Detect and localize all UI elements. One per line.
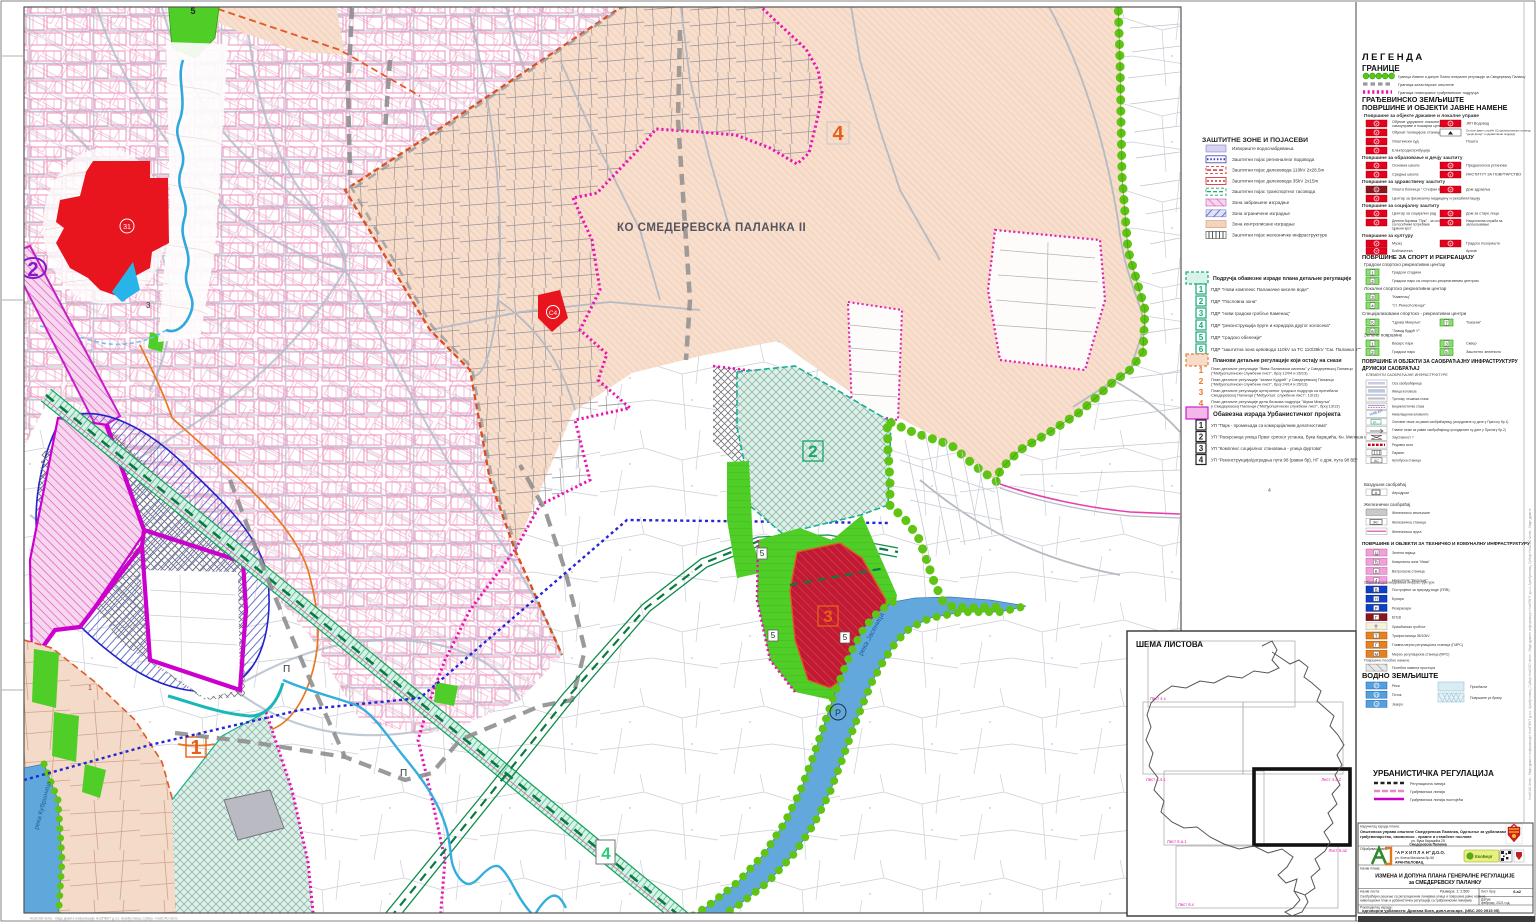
svg-text:Површине посебне намене: Површине посебне намене bbox=[1364, 659, 1410, 663]
svg-text:У: У bbox=[1375, 196, 1378, 201]
svg-text:Дом здравља: Дом здравља bbox=[1466, 188, 1491, 192]
svg-text:Површине за објекте државне и: Површине за објекте државне и локалне уп… bbox=[1364, 112, 1479, 119]
svg-text:Т: Т bbox=[1375, 633, 1378, 638]
svg-text:1: 1 bbox=[190, 737, 201, 759]
svg-text:1: 1 bbox=[88, 685, 92, 692]
svg-text:Заштитни појас далековода 35kV: Заштитни појас далековода 35kV 2x15m bbox=[1232, 178, 1319, 183]
svg-text:5: 5 bbox=[1199, 333, 1204, 342]
svg-text:Површине уз брану: Површине уз брану bbox=[1470, 696, 1502, 700]
svg-text:4: 4 bbox=[1199, 321, 1204, 330]
svg-text:УРБАНИСТИЧКА РЕГУЛАЦИЈА: УРБАНИСТИЧКА РЕГУЛАЦИЈА bbox=[1373, 769, 1494, 778]
svg-text:("Међуопштински службени лист": ("Међуопштински службени лист", број 12/… bbox=[1211, 371, 1308, 376]
svg-text:Р: Р bbox=[1375, 606, 1378, 611]
svg-text:Заштитни појас далековода 110k: Заштитни појас далековода 110kV 2x28,5m bbox=[1232, 168, 1325, 173]
svg-text:Градски стадион: Градски стадион bbox=[1392, 271, 1421, 275]
svg-text:ПОВРШИНЕ И ОБЈЕКТИ ЗА САОБРАЋА: ПОВРШИНЕ И ОБЈЕКТИ ЗА САОБРАЋАЈНУ ИНФРАС… bbox=[1362, 359, 1519, 365]
svg-text:нивелациони план и урбанистичк: нивелациони план и урбанистичка регулаци… bbox=[1360, 899, 1472, 903]
svg-text:Приобаље: Приобаље bbox=[1470, 685, 1487, 689]
svg-text:П: П bbox=[1375, 692, 1378, 697]
svg-text:Локални спортско рекреативни ц: Локални спортско рекреативни центар bbox=[1364, 286, 1447, 291]
svg-text:Језеро: Језеро bbox=[1392, 702, 1403, 706]
svg-text:ПОВРШИНЕ И ОБЈЕКТИ ЈАВНЕ НАМЕ: ПОВРШИНЕ И ОБЈЕКТИ ЈАВНЕ НАМЕНЕ bbox=[1362, 103, 1508, 112]
svg-text:Мерно регулациона станица (МРС: Мерно регулациона станица (МРС) bbox=[1392, 652, 1449, 656]
svg-text:Лист 6.а2: Лист 6.а2 bbox=[1329, 848, 1348, 853]
svg-text:ИНСТИТУТ ЗА ПОВРТАРСТВО: ИНСТИТУТ ЗА ПОВРТАРСТВО bbox=[1466, 173, 1521, 177]
svg-text:Заштитни појас транспортног га: Заштитни појас транспортног гасовода bbox=[1232, 189, 1316, 194]
svg-text:4: 4 bbox=[1268, 488, 1271, 494]
svg-text:Површине за здравствену заштит: Површине за здравствену заштиту bbox=[1362, 179, 1446, 185]
svg-text:Лист 4.4.1: Лист 4.4.1 bbox=[1146, 777, 1166, 782]
svg-text:Зона контролисане изградње: Зона контролисане изградње bbox=[1232, 222, 1295, 227]
svg-text:У: У bbox=[1375, 163, 1378, 168]
svg-text:HostCAD demo - Овде држите инф: HostCAD demo - Овде држите информације H… bbox=[1528, 508, 1532, 800]
svg-text:Подручја обавезне израде плана: Подручја обавезне израде плана детаљне р… bbox=[1213, 275, 1351, 282]
svg-text:Размера: 1: 2.500: Размера: 1: 2.500 bbox=[1440, 890, 1469, 894]
svg-text:УП "Раскрсница улица Првог срп: УП "Раскрсница улица Првог српског устан… bbox=[1211, 435, 1385, 440]
svg-text:Лист 6.х: Лист 6.х bbox=[1178, 902, 1195, 907]
svg-text:Грађевинска линија постојећа: Грађевинска линија постојећа bbox=[1410, 798, 1464, 802]
svg-text:У: У bbox=[1375, 130, 1378, 135]
svg-text:"дечји фонд" и здравствени под: "дечји фонд" и здравствени подрјед) bbox=[1466, 132, 1515, 136]
svg-text:Ваздушни саобраћај: Ваздушни саобраћај bbox=[1364, 482, 1406, 487]
svg-text:31: 31 bbox=[123, 224, 131, 231]
svg-text:ПОВРШИНЕ И ОБЈЕКТИ ЗА ТЕХНИЧКО: ПОВРШИНЕ И ОБЈЕКТИ ЗА ТЕХНИЧКО И КОМУНАЛ… bbox=[1362, 541, 1530, 546]
svg-text:У: У bbox=[1375, 249, 1378, 254]
svg-text:Железнички саобраћај: Железнички саобраћај bbox=[1364, 502, 1410, 507]
svg-text:ул. Кнеза Михаила бр.66: ул. Кнеза Михаила бр.66 bbox=[1395, 856, 1434, 860]
svg-text:ЛЕГЕНДА: ЛЕГЕНДА bbox=[1362, 52, 1425, 63]
svg-text:1: 1 bbox=[1199, 285, 1204, 294]
svg-text:Основна школа: Основна школа bbox=[1392, 164, 1420, 168]
svg-text:Хришћанско гробље: Хришћанско гробље bbox=[1392, 625, 1425, 629]
svg-text:2: 2 bbox=[808, 442, 817, 461]
svg-text:Градски парк са спортско-рекре: Градски парк са спортско-рекреативним це… bbox=[1392, 279, 1479, 283]
svg-text:У: У bbox=[1449, 187, 1452, 192]
svg-text:1: 1 bbox=[1199, 421, 1204, 430]
svg-text:"ст. Ренесполенца": "ст. Ренесполенца" bbox=[1392, 304, 1426, 308]
svg-text:Трафостаница 35/10kV: Трафостаница 35/10kV bbox=[1392, 634, 1430, 638]
svg-text:ПДР "заштитна зона цевовода 11: ПДР "заштитна зона цевовода 110kV за ТС … bbox=[1211, 347, 1361, 352]
svg-text:3: 3 bbox=[146, 301, 151, 310]
svg-text:Средња школа: Средња школа bbox=[1392, 173, 1419, 177]
svg-text:"Базени": "Базени" bbox=[1466, 321, 1482, 325]
svg-text:Градско позориште: Градско позориште bbox=[1466, 242, 1500, 246]
svg-text:одговорни урбаниста: Драгана Б: одговорни урбаниста: Драгана Бига, дипл.… bbox=[1362, 908, 1500, 913]
svg-text:4: 4 bbox=[601, 844, 611, 863]
svg-text:ИЗМЕНА И ДОПУНА ПЛАНА ГЕНЕРАЛН: ИЗМЕНА И ДОПУНА ПЛАНА ГЕНЕРАЛНЕ РЕГУЛАЦИ… bbox=[1375, 874, 1515, 880]
svg-text:Главне тачке за раван саобраћа: Главне тачке за раван саобраћајницу (коо… bbox=[1392, 428, 1506, 432]
svg-text:Оса саобраћајница: Оса саобраћајница bbox=[1392, 382, 1422, 386]
svg-text:Електродистрибуција: Електродистрибуција bbox=[1392, 149, 1431, 153]
svg-text:HostCAD demo - Овде држите инф: HostCAD demo - Овде држите информације H… bbox=[30, 917, 178, 921]
svg-text:1: 1 bbox=[1199, 365, 1204, 375]
svg-text:Објекат полицијске станице: Објекат полицијске станице bbox=[1392, 131, 1441, 135]
svg-text:Главна мерно регулациона стани: Главна мерно регулациона станица (ГМРС) bbox=[1392, 643, 1463, 647]
svg-text:У: У bbox=[1375, 220, 1378, 225]
svg-text:У: У bbox=[1375, 241, 1378, 246]
svg-text:Наручилац израде плана:: Наручилац израде плана: bbox=[1360, 825, 1400, 829]
svg-text:Зауставност ?: Зауставност ? bbox=[1392, 436, 1414, 440]
svg-text:Објекти водоснабдевања инфраст: Објекти водоснабдевања инфраструктуре bbox=[1364, 581, 1435, 585]
svg-text:Назив листа:: Назив листа: bbox=[1360, 890, 1380, 894]
svg-text:("Међуопштински службени лист": ("Међуопштински службени лист", број 24/… bbox=[1211, 382, 1308, 387]
svg-text:Железничко земљиште: Железничко земљиште bbox=[1392, 511, 1430, 515]
svg-text:у Смедеревској Паланци ("Међуо: у Смедеревској Паланци ("Међуопштински с… bbox=[1211, 404, 1340, 409]
svg-text:Паркинг: Паркинг bbox=[1392, 451, 1405, 455]
svg-text:П: П bbox=[400, 768, 407, 779]
svg-text:Ивица коловоза: Ивица коловоза bbox=[1392, 389, 1417, 393]
svg-text:3: 3 bbox=[1199, 444, 1204, 453]
svg-text:Нивелациони елементи: Нивелациони елементи bbox=[1392, 412, 1428, 416]
svg-text:ПДР "градско обележје": ПДР "градско обележје" bbox=[1211, 335, 1262, 340]
svg-text:Планови детаљне регулације кој: Планови детаљне регулације који остају н… bbox=[1213, 358, 1342, 364]
svg-text:Зона забрањене изградње: Зона забрањене изградње bbox=[1232, 200, 1290, 205]
svg-text:Обрађивач плана:: Обрађивач плана: bbox=[1360, 847, 1388, 851]
svg-text:Ђ: Ђ bbox=[1374, 560, 1378, 565]
svg-text:УП "Комплекс социјалног станов: УП "Комплекс социјалног становања - улиц… bbox=[1211, 446, 1322, 451]
svg-text:ДРУМСКИ САОБРАЋАЈ: ДРУМСКИ САОБРАЋАЈ bbox=[1362, 366, 1420, 372]
svg-text:Заштитно зеленило: Заштитно зеленило bbox=[1466, 350, 1501, 354]
svg-text:У: У bbox=[1375, 172, 1378, 177]
svg-text:У: У bbox=[1375, 121, 1378, 126]
svg-text:Лист 4.х: Лист 4.х bbox=[1150, 696, 1167, 701]
svg-text:ПОВРШИНЕ ЗА СПОРТ И РЕКРЕАЦИЈУ: ПОВРШИНЕ ЗА СПОРТ И РЕКРЕАЦИЈУ bbox=[1362, 255, 1474, 261]
svg-text:3: 3 bbox=[1199, 387, 1204, 397]
svg-text:самоуправе и пожарни центар: самоуправе и пожарни центар bbox=[1392, 124, 1446, 128]
svg-text:Река: Река bbox=[1392, 684, 1400, 688]
svg-text:Смедеревска Паланка: Смедеревска Паланка bbox=[1409, 843, 1446, 847]
svg-text:ПДР "Пословна зона": ПДР "Пословна зона" bbox=[1211, 299, 1257, 304]
svg-text:Заштитни појас регионалног вод: Заштитни појас регионалног водовода bbox=[1232, 157, 1315, 162]
svg-text:ЗАШТИТНЕ ЗОНЕ И ПОЈАСЕВИ: ЗАШТИТНЕ ЗОНЕ И ПОЈАСЕВИ bbox=[1202, 137, 1308, 144]
svg-text:Железничка станица: Железничка станица bbox=[1392, 520, 1426, 524]
svg-text:Комунална зона "Ивак": Комунална зона "Ивак" bbox=[1392, 560, 1430, 564]
svg-text:ПДР "нови градски гробље Камен: ПДР "нови градски гробље Каменац" bbox=[1211, 311, 1290, 316]
svg-text:Железничка пруга: Железничка пруга bbox=[1392, 530, 1422, 534]
svg-text:У: У bbox=[1375, 139, 1378, 144]
svg-text:КО СМЕДЕРЕВСКА ПАЛАНКА II: КО СМЕДЕРЕВСКА ПАЛАНКА II bbox=[617, 222, 806, 234]
svg-text:Лист 6.а.1: Лист 6.а.1 bbox=[1167, 839, 1187, 844]
svg-text:Површине за образовање и дечју: Површине за образовање и дечју заштиту bbox=[1362, 154, 1463, 161]
svg-text:3: 3 bbox=[1199, 309, 1204, 318]
svg-text:Зелене површине: Зелене површине bbox=[1364, 333, 1403, 338]
svg-text:У: У bbox=[1375, 148, 1378, 153]
svg-text:Лист број: Лист број bbox=[1481, 890, 1496, 894]
svg-text:АРАНЂЕЛОВАЦ: АРАНЂЕЛОВАЦ bbox=[1395, 861, 1424, 865]
svg-text:УП "Парк - промењада са комерц: УП "Парк - промењада са комерцијалним де… bbox=[1211, 423, 1328, 428]
svg-text:Заштитни појас железничке инфр: Заштитни појас железничке инфраструктуре bbox=[1232, 232, 1328, 237]
svg-text:Ј: Ј bbox=[1376, 702, 1378, 707]
svg-text:Ватрогасна станица: Ватрогасна станица bbox=[1392, 569, 1425, 573]
svg-text:Бунари: Бунари bbox=[1392, 597, 1404, 601]
svg-text:Р: Р bbox=[1375, 683, 1378, 688]
svg-text:"Црква Микуља": "Црква Микуља" bbox=[1392, 321, 1422, 325]
svg-text:Пошта: Пошта bbox=[1466, 140, 1479, 144]
svg-text:Постројење за прераду воде (ПП: Постројење за прераду воде (ППВ) bbox=[1392, 588, 1450, 592]
svg-text:Црвени крст: Црвени крст bbox=[1392, 226, 1412, 230]
svg-text:Смедеревској Паланци ("Међуопш: Смедеревској Паланци ("Међуопшт. службен… bbox=[1211, 393, 1319, 398]
svg-text:ЕкоБерг: ЕкоБерг bbox=[1475, 854, 1493, 859]
svg-text:Градски парк: Градски парк bbox=[1392, 350, 1415, 354]
svg-text:А: А bbox=[1375, 491, 1378, 495]
svg-text:Центар за социјални рад: Центар за социјални рад bbox=[1392, 212, 1437, 216]
svg-text:Музеј: Музеј bbox=[1392, 242, 1402, 246]
svg-text:Р: Р bbox=[835, 708, 841, 718]
svg-text:Предшколска установа: Предшколска установа bbox=[1466, 164, 1508, 168]
svg-text:Регулациона линија: Регулациона линија bbox=[1410, 782, 1446, 786]
svg-text:У: У bbox=[1449, 241, 1452, 246]
svg-text:Дом за старе лица: Дом за старе лица bbox=[1466, 212, 1500, 216]
svg-text:Поток: Поток bbox=[1392, 693, 1402, 697]
svg-text:Редовна зона: Редовна зона bbox=[1392, 443, 1413, 447]
svg-text:Резервоари: Резервоари bbox=[1392, 606, 1411, 610]
svg-text:Аеродром: Аеродром bbox=[1392, 491, 1409, 495]
svg-text:С4: С4 bbox=[549, 310, 558, 317]
svg-text:Тротоар, пешачка стаза: Тротоар, пешачка стаза bbox=[1392, 397, 1429, 401]
svg-text:У: У bbox=[1449, 172, 1452, 177]
svg-text:Бициклистичка стаза: Бициклистичка стаза bbox=[1392, 405, 1424, 409]
svg-text:ПДР "реконструкција пруге и ко: ПДР "реконструкција пруге и коридора дру… bbox=[1211, 323, 1331, 328]
svg-text:ЈКП Водовод: ЈКП Водовод bbox=[1466, 122, 1490, 126]
svg-text:Посебна намена простора: Посебна намена простора bbox=[1392, 666, 1435, 670]
svg-text:Основне тачке за раван саобраћ: Основне тачке за раван саобраћајницу (ко… bbox=[1392, 420, 1508, 424]
svg-text:Специјализовани спортско - рек: Специјализовани спортско - рекреативни ц… bbox=[1362, 311, 1467, 316]
svg-text:П: П bbox=[283, 664, 290, 675]
svg-text:5: 5 bbox=[771, 631, 776, 640]
svg-text:2: 2 bbox=[1199, 297, 1204, 306]
svg-text:Аутобуска станица: Аутобуска станица bbox=[1392, 459, 1421, 463]
svg-text:Извориште водоснабдевања: Извориште водоснабдевања bbox=[1232, 146, 1294, 151]
svg-text:4: 4 bbox=[1199, 456, 1204, 465]
svg-text:Зона ограничене изградње: Зона ограничене изградње bbox=[1232, 211, 1290, 216]
svg-text:М: М bbox=[1374, 652, 1378, 657]
svg-text:Сквер: Сквер bbox=[1466, 342, 1477, 346]
svg-text:ЕЛЕМЕНТИ САОБРАЋАЈНЕ ИНФРАСТРУ: ЕЛЕМЕНТИ САОБРАЋАЈНЕ ИНФРАСТРУКТУРЕ bbox=[1366, 373, 1448, 377]
svg-text:6.а2: 6.а2 bbox=[1513, 889, 1522, 894]
svg-text:АС: АС bbox=[1374, 459, 1379, 463]
svg-text:ГРАНИЦЕ: ГРАНИЦЕ bbox=[1362, 64, 1400, 73]
svg-text:Грађевинска линија: Грађевинска линија bbox=[1410, 790, 1446, 794]
svg-text:4: 4 bbox=[832, 123, 844, 145]
svg-text:У: У bbox=[1449, 220, 1452, 225]
svg-text:Лист 4.4.2: Лист 4.4.2 bbox=[1321, 777, 1341, 782]
svg-text:У: У bbox=[1449, 121, 1452, 126]
svg-text:5: 5 bbox=[760, 549, 765, 558]
svg-text:2: 2 bbox=[1199, 376, 1204, 386]
svg-text:Градски спортско рекреативни ц: Градски спортско рекреативни центар bbox=[1364, 262, 1446, 267]
svg-text:ПДР "Нови комплекс Паланачке к: ПДР "Нови комплекс Паланачке киселе воде… bbox=[1211, 287, 1309, 292]
svg-text:3: 3 bbox=[823, 607, 832, 626]
svg-text:ВОДНО ЗЕМЉИШТЕ: ВОДНО ЗЕМЉИШТЕ bbox=[1362, 671, 1438, 680]
svg-text:"А Р Х И П Л А Н" Д.О.О.: "А Р Х И П Л А Н" Д.О.О. bbox=[1395, 850, 1445, 855]
svg-text:Назив плана:: Назив плана: bbox=[1360, 867, 1380, 871]
svg-text:У: У bbox=[1375, 211, 1378, 216]
svg-text:Зелена пијаца: Зелена пијаца bbox=[1392, 551, 1415, 555]
svg-text:ЖС: ЖС bbox=[1373, 521, 1379, 525]
svg-text:Васкрс парк: Васкрс парк bbox=[1392, 342, 1414, 346]
svg-text:2: 2 bbox=[27, 259, 38, 281]
svg-text:Општински суд: Општински суд bbox=[1392, 140, 1419, 144]
svg-text:Б: Б bbox=[1375, 187, 1378, 192]
svg-text:Библиотека: Библиотека bbox=[1392, 249, 1414, 253]
svg-text:Центар за физикалну медицину и: Центар за физикалну медицину и рехабилит… bbox=[1392, 197, 1480, 201]
svg-text:У: У bbox=[1449, 211, 1452, 216]
svg-text:фебруар, 2021 год.: фебруар, 2021 год. bbox=[1481, 901, 1510, 905]
svg-text:2: 2 bbox=[1199, 433, 1204, 442]
svg-text:УП "Реконструкција/доградња пу: УП "Реконструкција/доградња пута 98 (рав… bbox=[1211, 458, 1358, 463]
svg-text:Површине за социјалну заштиту: Површине за социјалну заштиту bbox=[1362, 203, 1440, 209]
svg-text:Површине за културу: Површине за културу bbox=[1362, 233, 1413, 239]
svg-text:Н: Н bbox=[1375, 597, 1378, 602]
svg-text:У: У bbox=[1449, 163, 1452, 168]
svg-text:ЕГЕВ: ЕГЕВ bbox=[1392, 616, 1402, 620]
svg-text:запошљавање: запошљавање bbox=[1466, 223, 1489, 227]
svg-text:Граница Измене и допуне Плана: Граница Измене и допуне Плана генералне … bbox=[1398, 75, 1526, 79]
svg-text:Архив: Архив bbox=[1466, 249, 1477, 253]
svg-text:В: В bbox=[1375, 587, 1378, 592]
svg-text:"Каменац": "Каменац" bbox=[1392, 295, 1411, 299]
svg-text:6: 6 bbox=[1199, 345, 1204, 354]
svg-text:Граница катастарске општине: Граница катастарске општине bbox=[1398, 82, 1455, 87]
svg-text:Обавезна израда Урбанистичког: Обавезна израда Урбанистичког пројекта bbox=[1213, 411, 1341, 418]
svg-text:за СМЕДЕРЕВСКУ ПАЛАНКУ: за СМЕДЕРЕВСКУ ПАЛАНКУ bbox=[1409, 880, 1483, 886]
svg-text:5: 5 bbox=[843, 633, 848, 642]
